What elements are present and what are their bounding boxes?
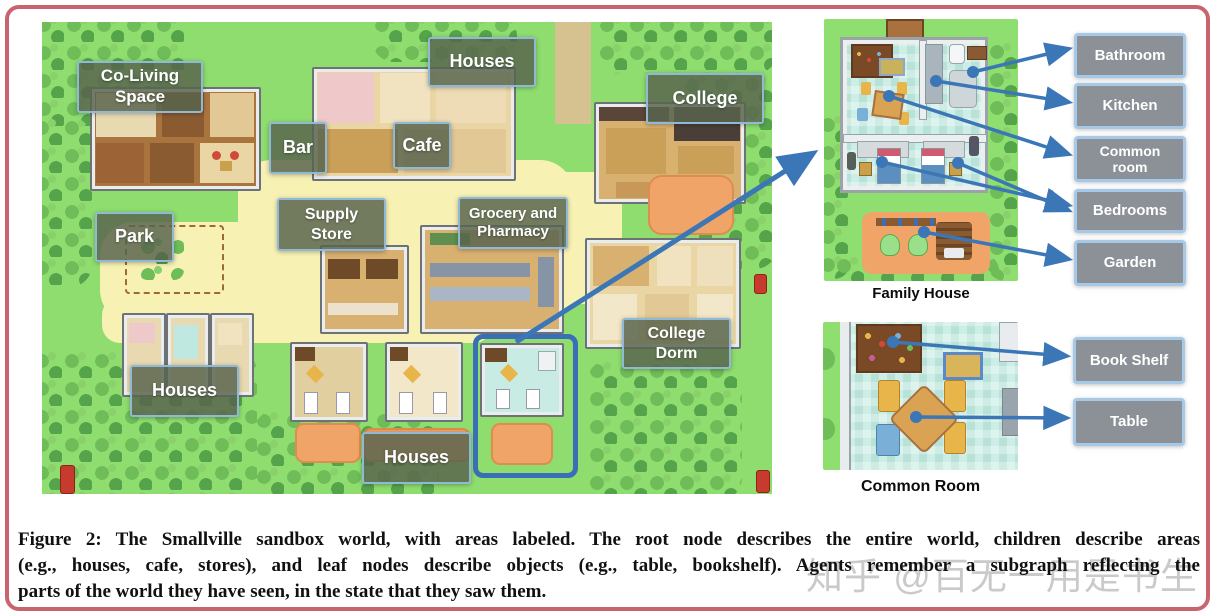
table — [220, 161, 232, 171]
map-label-grocery-pharmacy: Grocery and Pharmacy — [458, 197, 568, 249]
wall — [840, 322, 851, 470]
room — [593, 246, 649, 286]
room — [174, 325, 198, 359]
cabinet — [1002, 388, 1018, 436]
table — [403, 365, 421, 383]
common-room-caption: Common Room — [823, 478, 1018, 496]
map-label-houses-bottom-center: Houses — [362, 432, 471, 484]
picture-frame — [943, 352, 983, 380]
caption-line-3: parts of the world they have seen, in th… — [18, 579, 1200, 605]
map-label-houses-top: Houses — [428, 37, 536, 87]
room — [210, 93, 254, 137]
figure-caption: Figure 2: The Smallville sandbox world, … — [18, 527, 1200, 605]
figure-2-smallville: Co-Living Space Houses Bar Cafe College … — [0, 0, 1215, 616]
label-book-shelf: Book Shelf — [1073, 337, 1185, 384]
common-room-panel — [823, 322, 1018, 470]
blanket — [922, 165, 944, 183]
pillow — [922, 149, 944, 156]
chair-blue — [876, 424, 900, 456]
label-bedrooms: Bedrooms — [1074, 189, 1186, 233]
label-kitchen: Kitchen — [1074, 83, 1186, 129]
shelf — [430, 287, 530, 301]
chair-blue — [857, 108, 868, 121]
bed — [336, 392, 350, 414]
vanity — [967, 46, 987, 60]
map-label-bar: Bar — [269, 122, 327, 174]
building-supply-store — [320, 245, 409, 334]
bookshelf — [390, 347, 408, 361]
toilet — [949, 44, 965, 64]
bed — [921, 148, 945, 184]
map-label-college: College — [646, 73, 764, 124]
blanket — [878, 165, 900, 183]
bed — [877, 148, 901, 184]
bathtub — [949, 70, 977, 108]
side-table — [859, 162, 872, 176]
map-label-park: Park — [95, 212, 174, 262]
family-house-floorplan — [840, 37, 988, 193]
garden-bench-row — [876, 218, 936, 226]
rug — [879, 58, 905, 76]
shelf — [538, 257, 554, 307]
side-table — [949, 162, 962, 176]
grass-strip — [823, 322, 840, 470]
room — [96, 143, 144, 183]
red-car-icon — [754, 274, 767, 294]
bookshelf — [295, 347, 315, 361]
family-house-panel — [824, 19, 1018, 281]
flower-field — [648, 175, 734, 235]
tree-cluster-icon — [597, 22, 772, 74]
bar-counter — [318, 129, 398, 173]
family-garden — [862, 212, 990, 274]
bed — [433, 392, 447, 414]
room — [318, 73, 374, 123]
gazebo-base — [944, 248, 964, 258]
chair — [878, 380, 900, 412]
person — [969, 136, 979, 156]
dirt-road — [555, 22, 591, 124]
label-garden: Garden — [1074, 240, 1186, 286]
tree-cluster-icon — [987, 41, 1018, 281]
chair — [861, 82, 871, 95]
bookshelf — [856, 324, 922, 373]
red-car-icon — [756, 470, 770, 493]
shelf — [366, 259, 398, 279]
counter — [328, 303, 398, 315]
appliance — [999, 322, 1018, 362]
chair — [230, 151, 239, 160]
family-house-caption: Family House — [824, 285, 1018, 302]
room — [697, 246, 733, 286]
room — [218, 323, 242, 345]
tree-cluster-icon — [587, 360, 742, 494]
room — [129, 323, 155, 343]
chair — [212, 151, 221, 160]
map-label-supply-store: Supply Store — [277, 198, 386, 251]
highlight-box-family-house — [473, 334, 578, 478]
caption-line-1: Figure 2: The Smallville sandbox world, … — [18, 527, 1200, 553]
tree-icon — [908, 234, 928, 256]
map-label-co-living-space: Co-Living Space — [77, 61, 203, 113]
shelf — [430, 263, 530, 277]
desk-area — [678, 146, 734, 174]
building-house-bc-1 — [290, 342, 368, 422]
bed — [304, 392, 318, 414]
map-label-cafe: Cafe — [393, 122, 451, 169]
table — [871, 90, 904, 120]
red-car-icon — [60, 465, 75, 494]
pillow — [878, 149, 900, 156]
label-bathroom: Bathroom — [1074, 33, 1186, 78]
tree-icon — [880, 234, 900, 256]
map-label-college-dorm: College Dorm — [622, 318, 731, 369]
garden-patch — [295, 423, 361, 463]
caption-line-2: (e.g., houses, cafe, stores), and leaf n… — [18, 553, 1200, 579]
kitchen-counter — [925, 44, 943, 104]
smallville-map: Co-Living Space Houses Bar Cafe College … — [42, 22, 772, 494]
table — [306, 365, 324, 383]
label-table: Table — [1073, 398, 1185, 446]
tree-cluster-icon — [42, 117, 92, 287]
room — [380, 73, 430, 123]
person — [847, 152, 856, 170]
map-label-houses-bottom-left: Houses — [130, 365, 239, 417]
bed — [399, 392, 413, 414]
label-common-room: Common room — [1074, 136, 1186, 182]
room — [657, 246, 691, 286]
shelf — [328, 259, 360, 279]
building-house-bc-2 — [385, 342, 463, 422]
gazebo — [936, 222, 972, 260]
room — [150, 143, 194, 183]
desk-area — [606, 128, 666, 174]
